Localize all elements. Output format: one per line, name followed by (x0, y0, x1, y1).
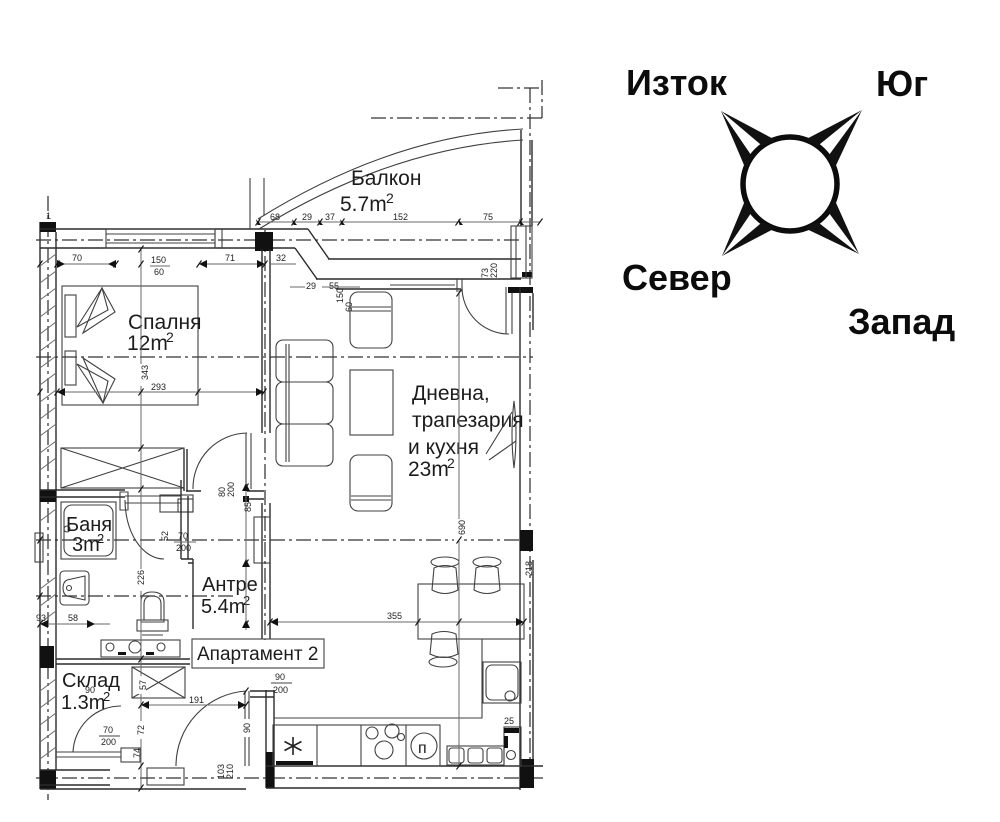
svg-text:226: 226 (136, 570, 146, 585)
svg-text:Балкон: Балкон (351, 167, 421, 190)
svg-text:60: 60 (344, 302, 354, 312)
svg-text:93: 93 (36, 613, 46, 623)
svg-text:и кухня: и кухня (408, 436, 479, 459)
svg-text:2: 2 (166, 329, 174, 345)
svg-text:150: 150 (335, 288, 345, 303)
svg-text:Дневна,: Дневна, (412, 382, 490, 405)
svg-text:52: 52 (160, 531, 170, 541)
svg-text:32: 32 (276, 253, 286, 263)
svg-text:70: 70 (103, 725, 113, 735)
svg-text:200: 200 (273, 685, 288, 695)
svg-text:70: 70 (72, 253, 82, 263)
svg-text:191: 191 (189, 695, 204, 705)
svg-text:25: 25 (504, 716, 514, 726)
svg-text:2: 2 (386, 190, 394, 206)
svg-text:2: 2 (243, 593, 250, 608)
svg-text:200: 200 (176, 543, 191, 553)
svg-text:1: 1 (46, 211, 51, 221)
svg-text:293: 293 (151, 382, 166, 392)
svg-text:200: 200 (226, 482, 236, 497)
svg-text:Север: Север (622, 257, 732, 298)
svg-text:70: 70 (178, 531, 188, 541)
svg-text:72: 72 (136, 725, 146, 735)
svg-text:Апартамент 2: Апартамент 2 (197, 644, 318, 665)
svg-text:355: 355 (387, 611, 402, 621)
svg-text:200: 200 (101, 737, 116, 747)
svg-text:Юг: Юг (876, 63, 928, 104)
svg-text:1.3m: 1.3m (61, 692, 105, 714)
svg-text:75: 75 (483, 212, 493, 222)
svg-text:68: 68 (270, 212, 280, 222)
svg-text:12m: 12m (127, 332, 168, 355)
svg-text:29: 29 (306, 281, 316, 291)
svg-text:2: 2 (97, 531, 104, 546)
svg-text:343: 343 (140, 365, 150, 380)
svg-text:90: 90 (242, 723, 252, 733)
svg-text:5.7m: 5.7m (340, 193, 387, 216)
svg-text:23m: 23m (408, 458, 449, 481)
svg-text:60: 60 (154, 267, 164, 277)
svg-text:220: 220 (489, 263, 499, 278)
svg-text:152: 152 (393, 212, 408, 222)
svg-text:71: 71 (225, 253, 235, 263)
svg-text:3m: 3m (72, 534, 100, 556)
svg-text:210: 210 (225, 764, 235, 779)
svg-text:Спалня: Спалня (128, 311, 201, 334)
svg-text:218: 218 (524, 561, 534, 576)
svg-text:90: 90 (85, 685, 95, 695)
svg-text:85: 85 (243, 502, 253, 512)
svg-text:2: 2 (447, 455, 455, 471)
svg-text:150: 150 (151, 255, 166, 265)
svg-text:5.4m: 5.4m (201, 596, 245, 618)
svg-text:58: 58 (68, 613, 78, 623)
svg-text:690: 690 (457, 520, 467, 535)
svg-text:Изток: Изток (626, 62, 728, 103)
svg-text:37: 37 (325, 212, 335, 222)
svg-text:57: 57 (138, 680, 148, 690)
svg-text:29: 29 (302, 212, 312, 222)
svg-text:Запад: Запад (848, 301, 955, 342)
svg-text:74: 74 (132, 748, 142, 758)
svg-text:90: 90 (275, 672, 285, 682)
svg-text:Баня: Баня (66, 514, 112, 536)
svg-text:п: п (418, 740, 427, 757)
svg-text:2: 2 (103, 689, 110, 704)
